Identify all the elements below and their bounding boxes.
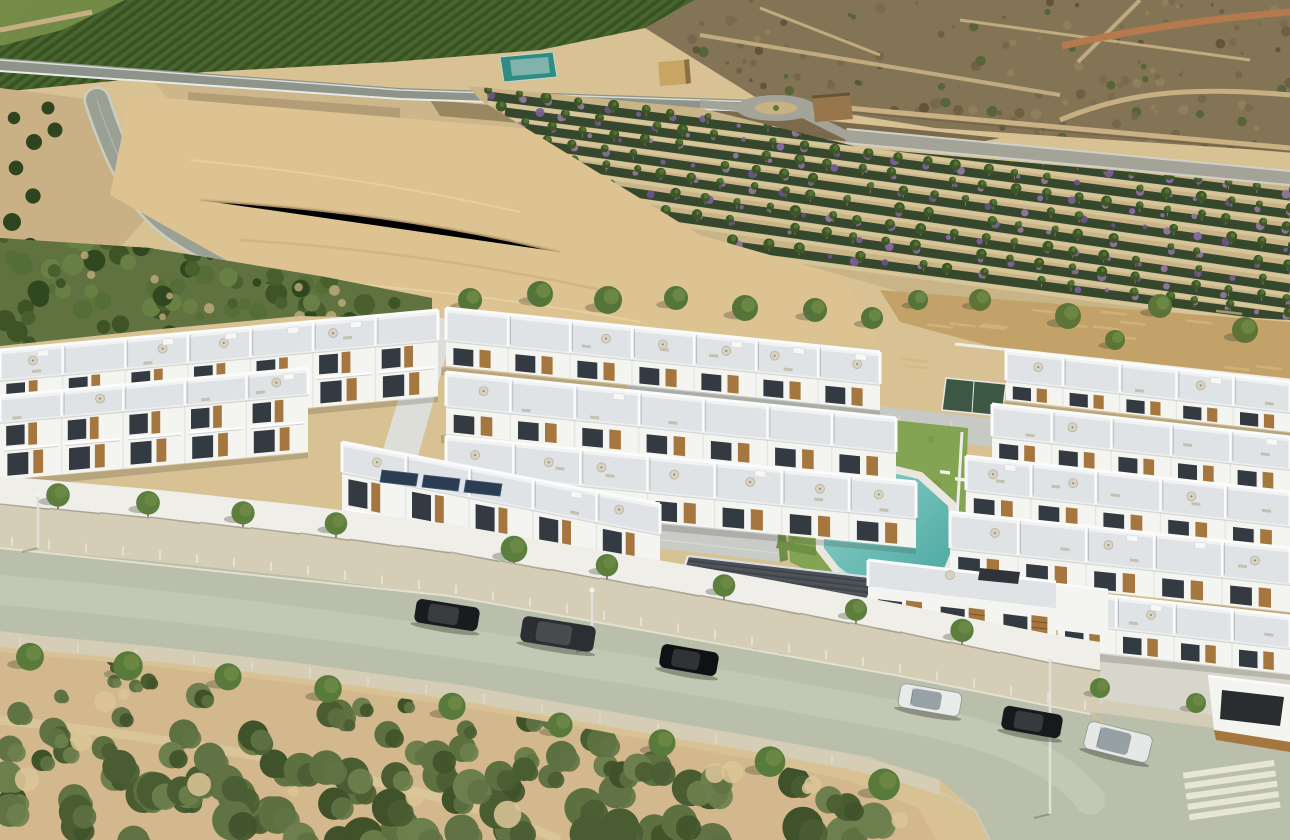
aerial-render <box>0 0 1290 840</box>
corner-building <box>1208 676 1290 752</box>
aerial-photo-stage <box>0 0 1290 840</box>
